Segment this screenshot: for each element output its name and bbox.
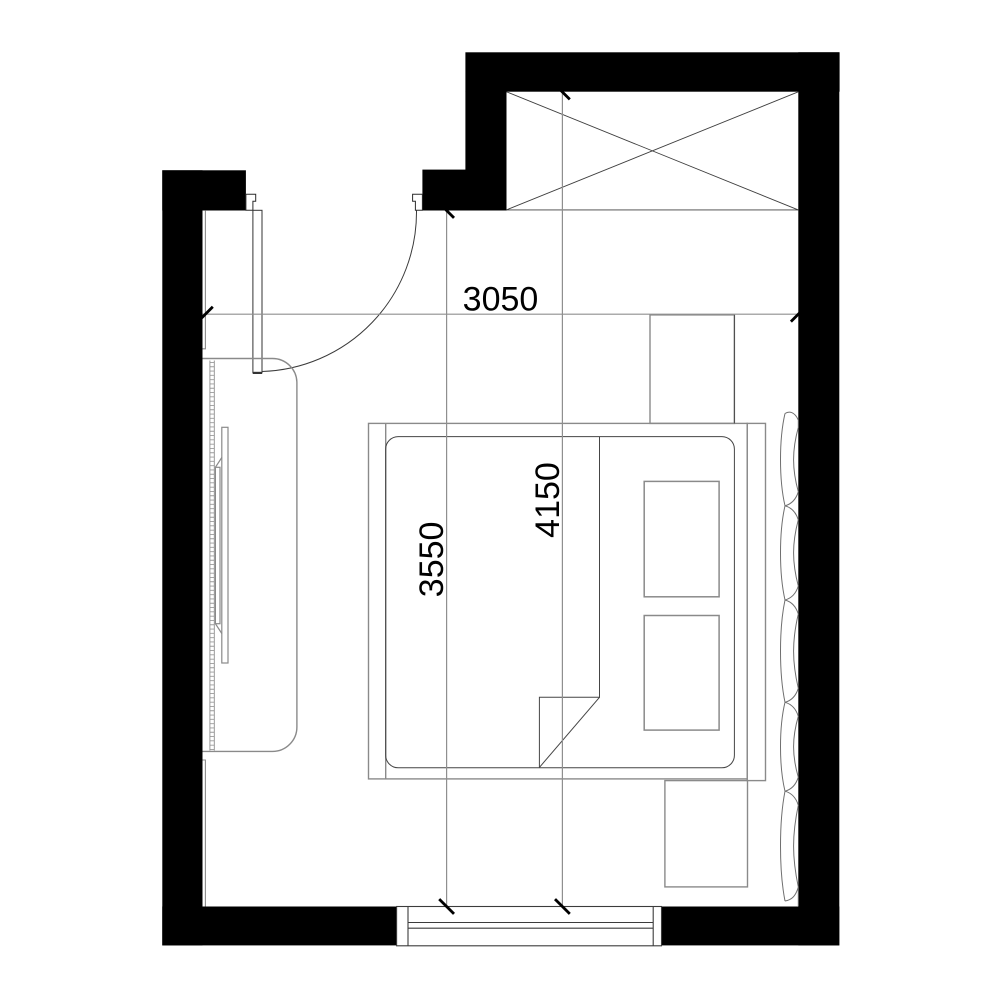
svg-text:4150: 4150 (529, 462, 567, 538)
svg-text:3550: 3550 (413, 522, 451, 598)
svg-text:3050: 3050 (463, 281, 539, 319)
